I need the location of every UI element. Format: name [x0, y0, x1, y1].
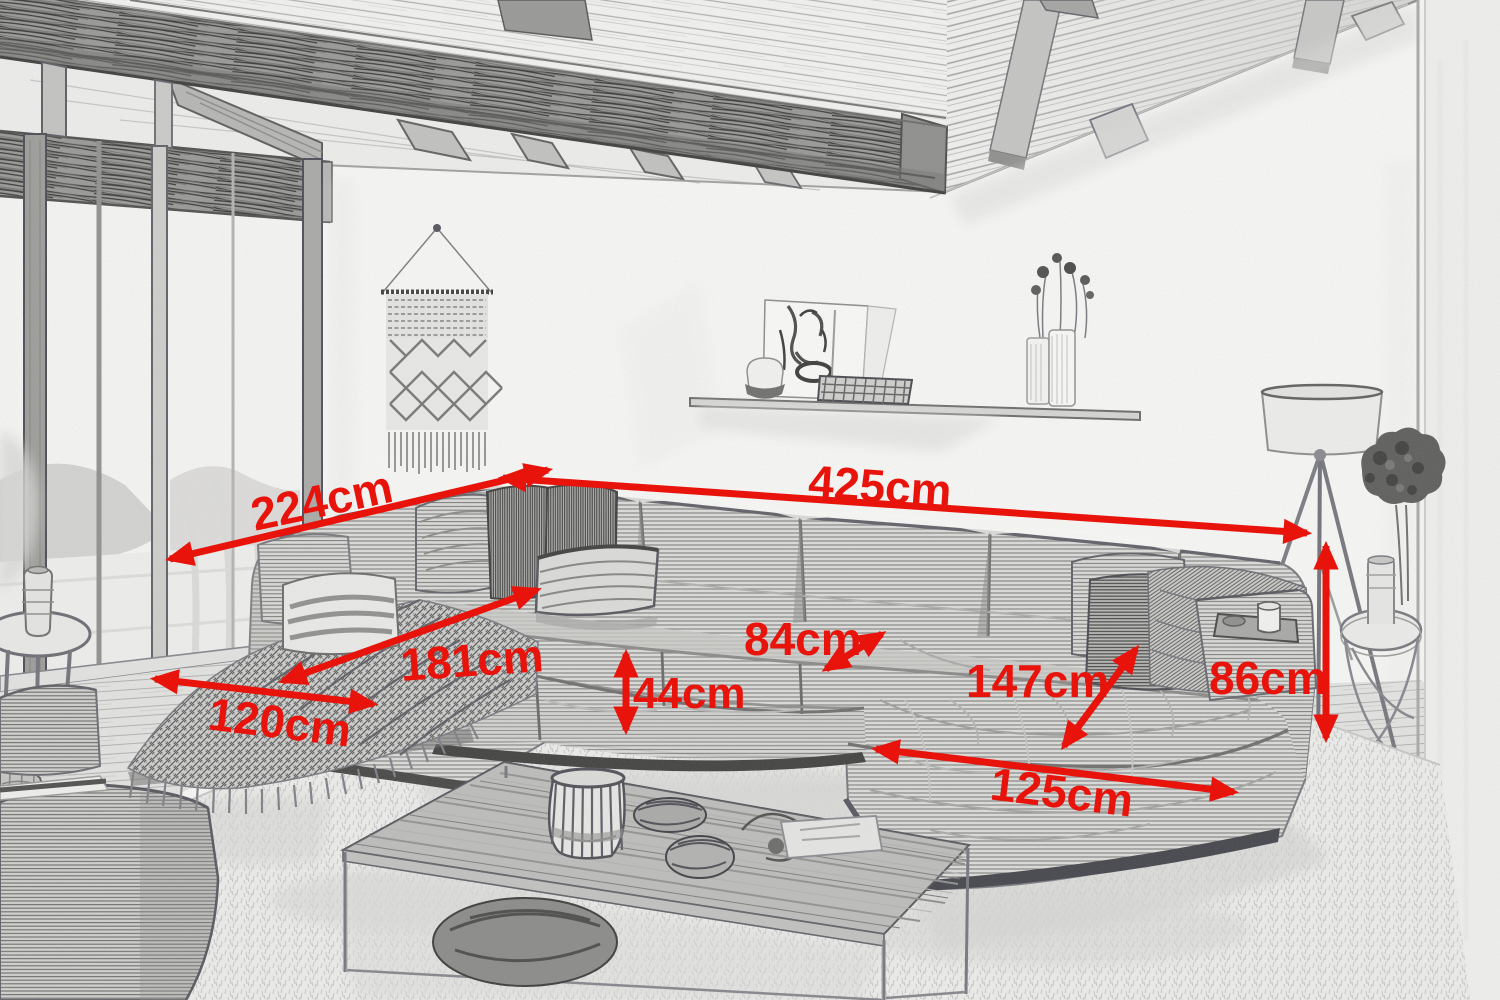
- svg-text:86cm: 86cm: [1209, 652, 1327, 704]
- svg-text:181cm: 181cm: [399, 629, 546, 691]
- svg-text:425cm: 425cm: [807, 455, 954, 517]
- svg-text:84cm: 84cm: [744, 613, 862, 665]
- svg-text:147cm: 147cm: [966, 655, 1109, 707]
- svg-text:44cm: 44cm: [633, 669, 746, 718]
